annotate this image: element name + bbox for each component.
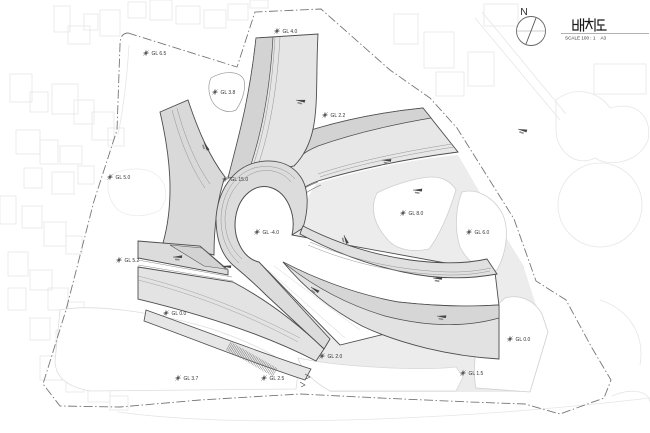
- svg-text:GL 0.0: GL 0.0: [172, 311, 187, 317]
- svg-text:GL 4.0: GL 4.0: [283, 29, 298, 35]
- svg-text:GL 2.5: GL 2.5: [270, 376, 285, 382]
- svg-text:GL 0.0: GL 0.0: [516, 337, 531, 343]
- svg-text:GL 3.8: GL 3.8: [221, 90, 236, 96]
- svg-text:GL -4.0: GL -4.0: [263, 230, 280, 236]
- svg-text:GL 6.0: GL 6.0: [475, 230, 490, 236]
- svg-text:GL 6.5: GL 6.5: [152, 51, 167, 57]
- svg-text:GL 3.7: GL 3.7: [184, 376, 199, 382]
- svg-text:GL 2.2: GL 2.2: [331, 113, 346, 119]
- svg-text:GL 1.5: GL 1.5: [469, 371, 484, 377]
- svg-text:GL 5.2: GL 5.2: [125, 258, 140, 264]
- svg-text:GL 15.0: GL 15.0: [231, 177, 249, 183]
- svg-text:SCALE 100 : 1 A3: SCALE 100 : 1 A3: [565, 36, 607, 41]
- svg-text:GL 5.0: GL 5.0: [116, 175, 131, 181]
- svg-text:GL 8.0: GL 8.0: [409, 211, 424, 217]
- svg-text:N: N: [520, 6, 528, 18]
- svg-text:GL 2.0: GL 2.0: [328, 354, 343, 360]
